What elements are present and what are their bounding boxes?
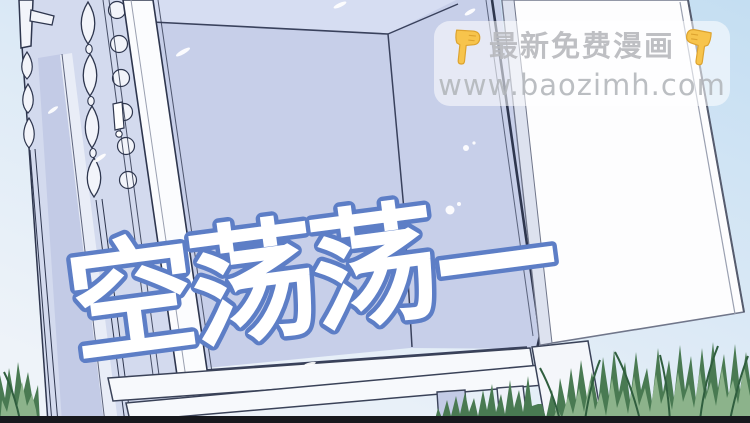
watermark-title-row: 最新免费漫画: [450, 28, 714, 66]
watermark: 最新免费漫画 www.baozimh.com: [434, 21, 730, 106]
panel-bottom-bar: [0, 416, 750, 423]
comic-panel: 空荡荡— 最新免费漫画 www.baozimh.com: [0, 0, 750, 423]
latch-detail: [113, 102, 124, 130]
pointing-down-icon-left: [448, 26, 484, 67]
watermark-url: www.baozimh.com: [438, 71, 726, 100]
pointing-down-icon-right: [680, 25, 717, 67]
watermark-title: 最新免费漫画: [489, 32, 675, 61]
